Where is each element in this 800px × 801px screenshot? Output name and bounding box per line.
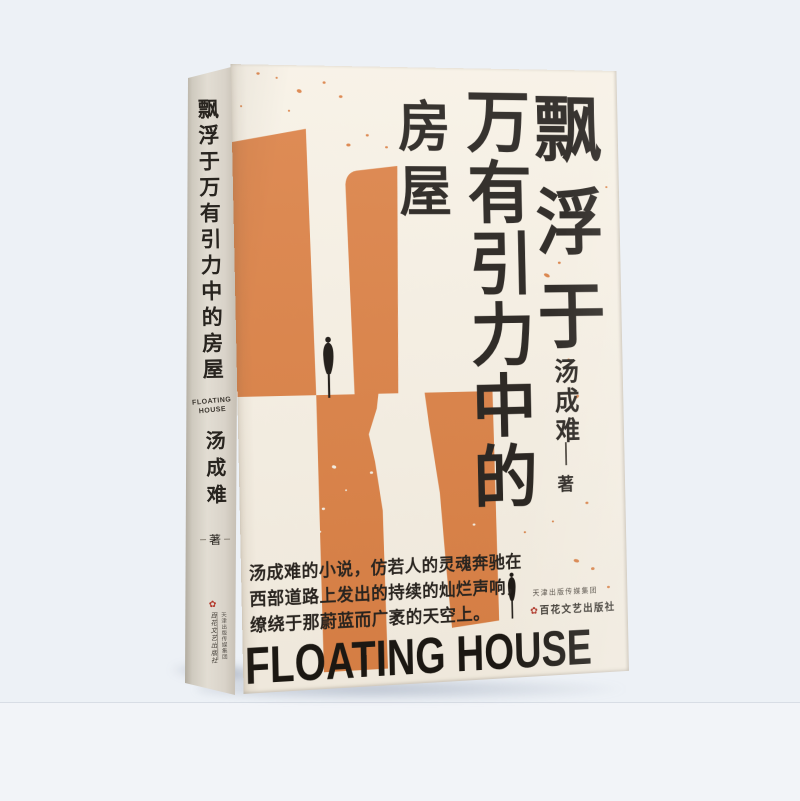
spine-title: 飘浮于万有引力中的房屋: [196, 98, 222, 384]
spine-author-role-text: 著: [209, 531, 221, 548]
decorative-bar: [224, 539, 230, 540]
decorative-bar: [200, 539, 206, 540]
spine-title-english-line2: HOUSE: [199, 406, 227, 415]
cover-title-column-3: 房屋: [392, 97, 447, 227]
art-left-leg-upper: [232, 128, 316, 397]
spine-publisher-block: ✿ 百花文艺出版社 天津出版传媒集团: [208, 600, 226, 664]
cover-title-column-1: 飘浮于: [526, 91, 600, 373]
cover-publisher-block: 天津出版传媒集团 ✿百花文艺出版社: [530, 585, 601, 619]
spine-title-english-line1: FLOATING: [192, 396, 232, 406]
spine-publisher-name: 百花文艺出版社: [208, 611, 216, 664]
cover-author-role: 著: [557, 471, 574, 497]
table-surface: [0, 702, 800, 801]
book-cover: 飘浮于 万有引力中的 房屋 汤成难 著 汤成难的小说，仿若人的灵魂奔驰在 西部道…: [230, 64, 629, 694]
spine-author: 汤成难: [203, 430, 225, 511]
product-photo: 飘浮于万有引力中的房屋 FLOATING HOUSE 汤成难 著 ✿ 百花文艺出…: [0, 0, 800, 800]
publisher-seal-icon: ✿: [209, 599, 217, 608]
spine-publisher-group: 天津出版传媒集团: [216, 611, 225, 659]
person-silhouette: [323, 337, 335, 398]
cover-title-column-2: 万有引力中的: [458, 86, 531, 515]
cover-publisher-group: 天津出版传媒集团: [530, 585, 601, 599]
spine-author-role: 著: [200, 531, 230, 549]
publisher-seal-icon: ✿: [530, 606, 538, 617]
spine-title-english: FLOATING HOUSE: [192, 395, 233, 416]
cover-author: 汤成难: [551, 358, 577, 447]
